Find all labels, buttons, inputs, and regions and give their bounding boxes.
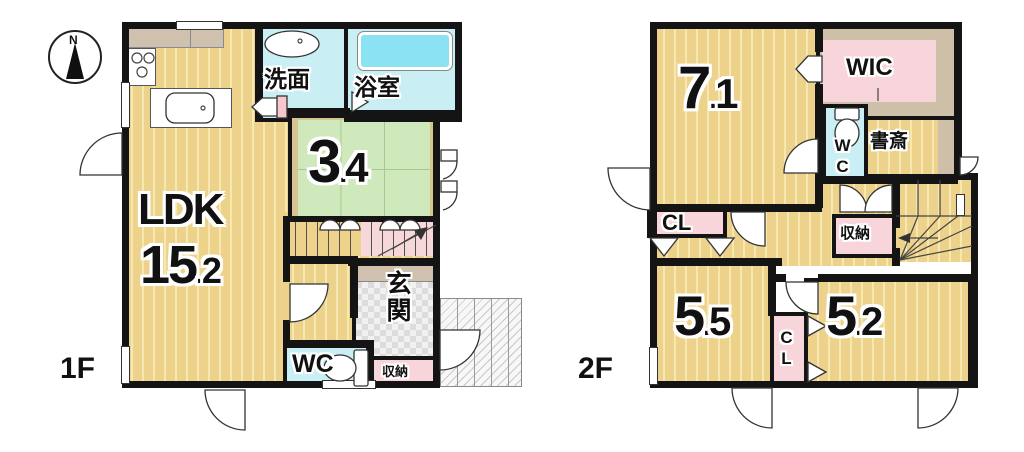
door-arc bbox=[440, 330, 480, 370]
room-area-ldk: 15.2 bbox=[140, 238, 220, 292]
room-label-storage-2f: 収納 bbox=[840, 226, 870, 241]
room-label-study: 書斎 bbox=[870, 132, 908, 151]
room-label-cl-2: CL bbox=[778, 328, 795, 370]
floor-label-1f: 1F bbox=[60, 352, 95, 386]
folding-door bbox=[808, 362, 826, 382]
opening-arrow bbox=[796, 56, 822, 82]
folding-door bbox=[380, 220, 420, 230]
casement-window bbox=[441, 181, 457, 192]
room-label-cl-mid: CL bbox=[662, 212, 691, 234]
room-label-storage-1f: 収納 bbox=[382, 365, 408, 378]
stair-line bbox=[900, 226, 972, 260]
casement-window bbox=[441, 150, 457, 161]
door-slab bbox=[277, 96, 287, 118]
door-arc bbox=[80, 133, 122, 175]
door-arc bbox=[731, 212, 765, 246]
casement-arc bbox=[443, 161, 457, 179]
room-area-7-1: 7.1 bbox=[678, 58, 737, 118]
door-arc bbox=[290, 284, 328, 322]
compass-rose: N bbox=[48, 30, 102, 84]
door-arc bbox=[205, 390, 245, 430]
casement-arc bbox=[443, 192, 457, 210]
door-arc bbox=[732, 388, 772, 428]
floor-plan-canvas: N LDK 15.2 洗面 浴室 3.4 玄関 WC 収納 1F 7.1 WIC… bbox=[0, 0, 1024, 452]
casement-window-study bbox=[960, 157, 978, 175]
opening-arrow bbox=[252, 98, 278, 116]
folding-door bbox=[706, 238, 734, 256]
folding-door bbox=[320, 220, 360, 230]
room-area-5-2: 5.2 bbox=[826, 288, 881, 344]
kitchen-sink bbox=[166, 93, 214, 123]
stair-arrow-head bbox=[898, 233, 910, 243]
washroom-sink bbox=[265, 31, 319, 57]
room-label-wc-2f: WC bbox=[834, 136, 851, 178]
double-door-leaf bbox=[840, 185, 867, 212]
room-label-ldk: LDK bbox=[138, 188, 222, 232]
door-arc bbox=[786, 282, 818, 314]
room-label-entrance: 玄関 bbox=[384, 270, 409, 324]
room-label-bathroom: 浴室 bbox=[354, 76, 400, 99]
compass-needle-icon bbox=[66, 43, 84, 79]
door-arc bbox=[608, 168, 650, 210]
room-label-wic: WIC bbox=[846, 56, 893, 80]
folding-door bbox=[808, 316, 826, 336]
room-label-washroom: 洗面 bbox=[264, 68, 310, 91]
door-arc bbox=[784, 139, 818, 173]
room-area-5-5: 5.5 bbox=[674, 288, 729, 344]
folding-door bbox=[650, 238, 678, 256]
room-label-wc-1f: WC bbox=[292, 352, 334, 377]
double-door-leaf bbox=[865, 185, 892, 212]
floor-label-2f: 2F bbox=[578, 352, 613, 386]
room-area-tatami: 3.4 bbox=[308, 132, 367, 192]
door-arc bbox=[918, 388, 958, 428]
toilet-tank bbox=[835, 108, 859, 120]
